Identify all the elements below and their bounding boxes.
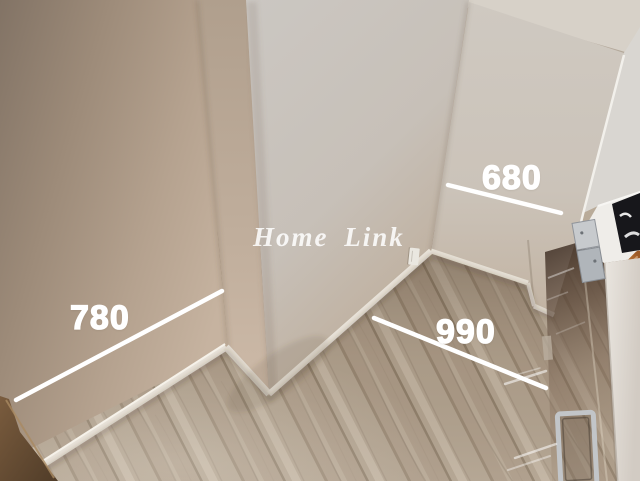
measurement-label-780: 780 (70, 299, 130, 338)
power-outlet (407, 247, 420, 265)
measurement-label-990: 990 (436, 313, 496, 352)
watermark: Home Link (253, 222, 405, 253)
glass-clamp-lower (557, 412, 597, 481)
clamp-upper-bottom (577, 247, 605, 283)
measurement-label-680: 680 (482, 159, 542, 198)
room-photo: Home Link 780 680 990 (0, 0, 640, 481)
outlet-plate (408, 248, 420, 266)
clamp-upper-top (572, 219, 599, 250)
